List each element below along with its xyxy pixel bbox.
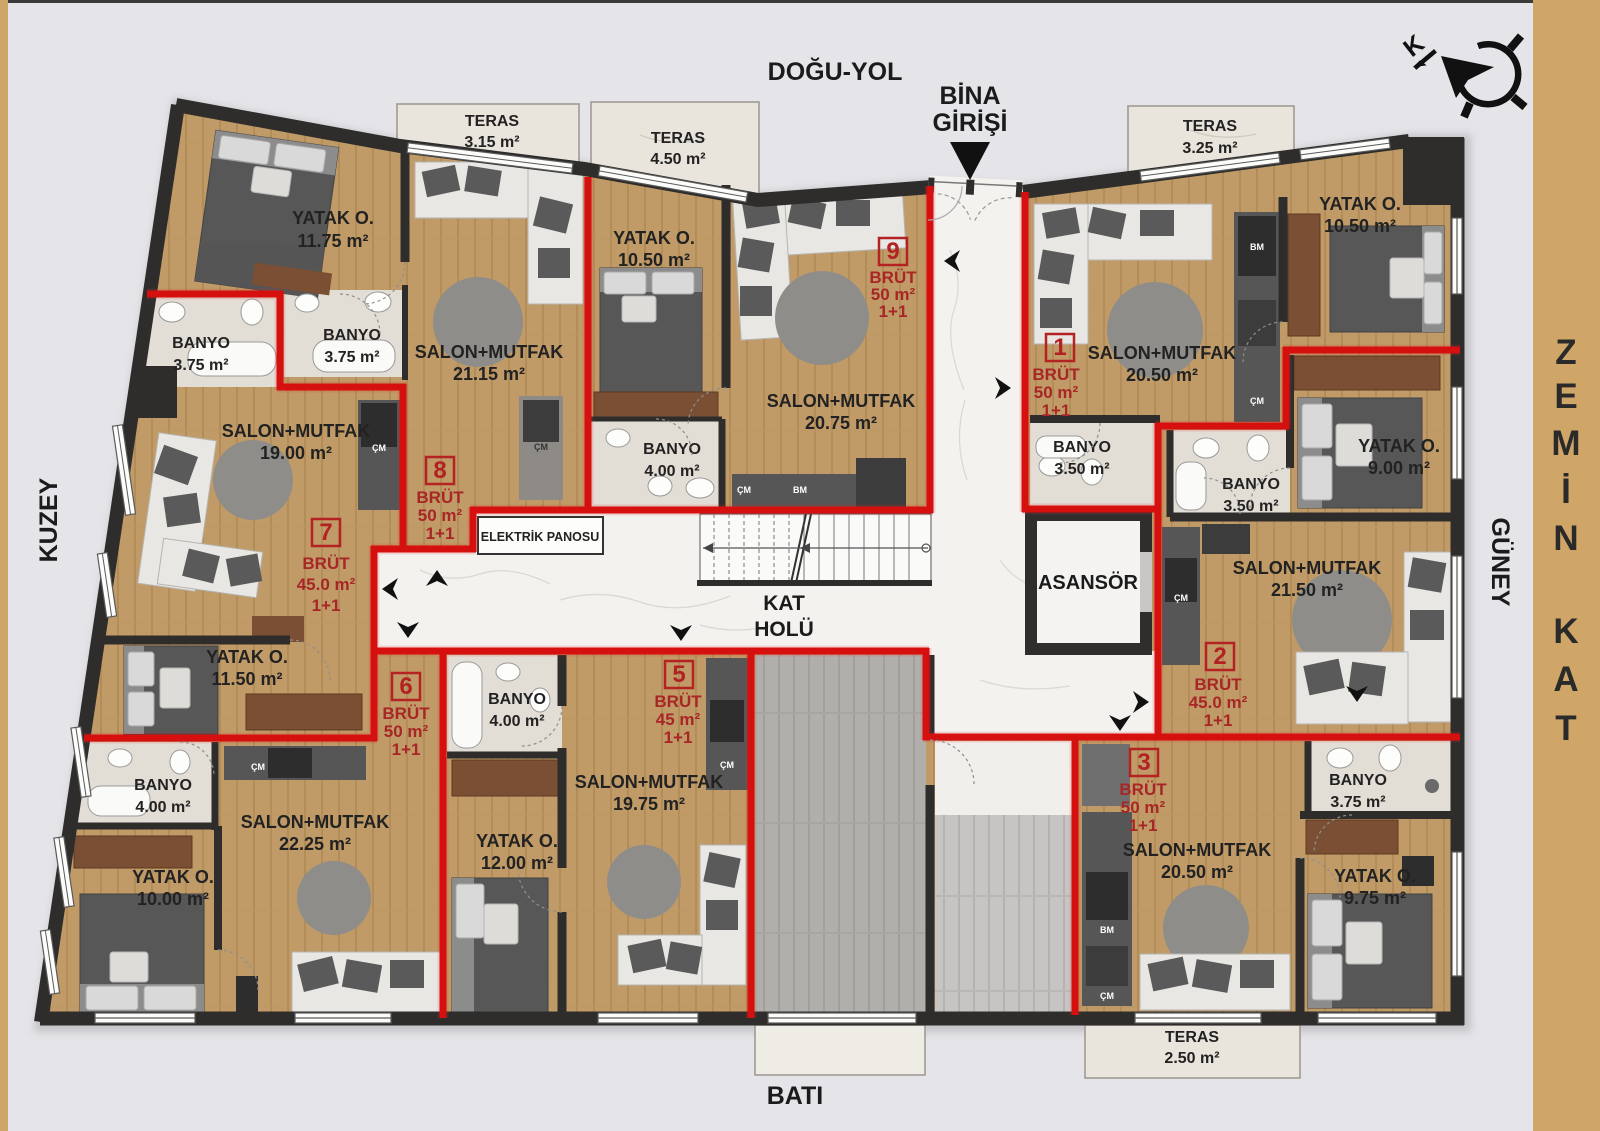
svg-text:8: 8 <box>433 457 446 484</box>
svg-text:YATAK O.: YATAK O. <box>1358 436 1440 456</box>
svg-text:2: 2 <box>1213 643 1226 670</box>
svg-text:3: 3 <box>1137 749 1150 776</box>
svg-text:SALON+MUTFAK: SALON+MUTFAK <box>575 772 724 792</box>
svg-text:YATAK O.: YATAK O. <box>476 831 558 851</box>
svg-text:BRÜT: BRÜT <box>1119 780 1167 799</box>
svg-text:4.00 m²: 4.00 m² <box>644 463 699 480</box>
svg-text:1+1: 1+1 <box>879 302 908 321</box>
svg-text:45.0 m²: 45.0 m² <box>1189 693 1248 712</box>
svg-text:20.75 m²: 20.75 m² <box>805 413 877 433</box>
svg-text:BANYO: BANYO <box>134 777 192 794</box>
svg-text:12.00 m²: 12.00 m² <box>481 853 553 873</box>
svg-text:ÇM: ÇM <box>720 760 734 770</box>
svg-text:2.50 m²: 2.50 m² <box>1164 1050 1219 1067</box>
svg-text:TERAS: TERAS <box>651 130 706 147</box>
svg-text:45.0 m²: 45.0 m² <box>297 575 356 594</box>
svg-text:6: 6 <box>399 673 412 700</box>
svg-text:7: 7 <box>319 519 332 546</box>
svg-text:YATAK O.: YATAK O. <box>132 867 214 887</box>
svg-text:BM: BM <box>793 485 807 495</box>
svg-text:Z: Z <box>1555 333 1576 372</box>
svg-text:BANYO: BANYO <box>488 691 546 708</box>
svg-text:ELEKTRİK PANOSU: ELEKTRİK PANOSU <box>481 529 600 544</box>
svg-text:ÇM: ÇM <box>534 442 548 452</box>
svg-text:9: 9 <box>886 238 899 265</box>
svg-text:3.75 m²: 3.75 m² <box>1330 794 1385 811</box>
svg-text:BANYO: BANYO <box>323 327 381 344</box>
svg-text:ÇM: ÇM <box>1100 991 1114 1001</box>
svg-text:ÇM: ÇM <box>1174 593 1188 603</box>
svg-text:1+1: 1+1 <box>1129 816 1158 835</box>
svg-text:50 m²: 50 m² <box>1034 383 1079 402</box>
svg-text:ÇM: ÇM <box>737 485 751 495</box>
svg-text:3.25 m²: 3.25 m² <box>1182 140 1237 157</box>
svg-text:9.75 m²: 9.75 m² <box>1344 888 1406 908</box>
svg-text:1+1: 1+1 <box>1204 711 1233 730</box>
svg-text:20.50 m²: 20.50 m² <box>1161 862 1233 882</box>
svg-text:9.00 m²: 9.00 m² <box>1368 458 1430 478</box>
svg-text:M: M <box>1551 424 1580 463</box>
svg-text:ÇM: ÇM <box>251 762 265 772</box>
svg-text:50 m²: 50 m² <box>384 722 429 741</box>
svg-text:SALON+MUTFAK: SALON+MUTFAK <box>1123 840 1272 860</box>
svg-text:1+1: 1+1 <box>426 524 455 543</box>
svg-text:3.15 m²: 3.15 m² <box>464 134 519 151</box>
svg-text:YATAK O.: YATAK O. <box>1334 866 1416 886</box>
svg-text:21.15 m²: 21.15 m² <box>453 364 525 384</box>
svg-text:1: 1 <box>1053 334 1066 361</box>
svg-text:SALON+MUTFAK: SALON+MUTFAK <box>1088 343 1237 363</box>
svg-text:10.50 m²: 10.50 m² <box>618 250 690 270</box>
svg-text:GİRİŞİ: GİRİŞİ <box>932 109 1007 137</box>
svg-text:4.50 m²: 4.50 m² <box>650 151 705 168</box>
svg-text:BRÜT: BRÜT <box>302 554 350 573</box>
svg-text:22.25 m²: 22.25 m² <box>279 834 351 854</box>
svg-text:BANYO: BANYO <box>1053 439 1111 456</box>
svg-text:BM: BM <box>1250 242 1264 252</box>
svg-text:A: A <box>1553 660 1578 699</box>
svg-text:SALON+MUTFAK: SALON+MUTFAK <box>415 342 564 362</box>
svg-text:3.75 m²: 3.75 m² <box>173 357 228 374</box>
svg-text:10.50 m²: 10.50 m² <box>1324 216 1396 236</box>
svg-text:N: N <box>1553 519 1578 558</box>
svg-text:10.00 m²: 10.00 m² <box>137 889 209 909</box>
svg-text:BRÜT: BRÜT <box>382 704 430 723</box>
svg-text:1+1: 1+1 <box>664 728 693 747</box>
svg-text:50 m²: 50 m² <box>1121 798 1166 817</box>
svg-text:11.50 m²: 11.50 m² <box>211 669 282 689</box>
svg-text:ÇM: ÇM <box>1250 396 1264 406</box>
svg-text:BATI: BATI <box>767 1082 823 1110</box>
svg-text:4.00 m²: 4.00 m² <box>135 799 190 816</box>
svg-text:4.00 m²: 4.00 m² <box>489 713 544 730</box>
svg-text:45 m²: 45 m² <box>656 710 701 729</box>
svg-text:K: K <box>1553 612 1578 651</box>
svg-text:T: T <box>1555 709 1576 748</box>
svg-text:19.75 m²: 19.75 m² <box>613 794 685 814</box>
svg-text:11.75 m²: 11.75 m² <box>297 231 368 251</box>
svg-text:BANYO: BANYO <box>643 441 701 458</box>
svg-text:TERAS: TERAS <box>1165 1029 1220 1046</box>
svg-text:DOĞU-YOL: DOĞU-YOL <box>768 57 903 86</box>
svg-text:21.50 m²: 21.50 m² <box>1271 580 1343 600</box>
svg-text:3.50 m²: 3.50 m² <box>1054 461 1109 478</box>
svg-text:YATAK O.: YATAK O. <box>292 208 374 228</box>
svg-text:1+1: 1+1 <box>392 740 421 759</box>
svg-text:BİNA: BİNA <box>939 82 1000 110</box>
svg-text:50 m²: 50 m² <box>418 506 463 525</box>
svg-text:BM: BM <box>1100 925 1114 935</box>
svg-text:19.00 m²: 19.00 m² <box>260 443 332 463</box>
svg-text:TERAS: TERAS <box>1183 118 1238 135</box>
svg-text:BRÜT: BRÜT <box>1032 365 1080 384</box>
svg-text:HOLÜ: HOLÜ <box>754 618 814 641</box>
svg-text:BRÜT: BRÜT <box>1194 675 1242 694</box>
svg-text:İ: İ <box>1561 472 1571 511</box>
svg-text:YATAK O.: YATAK O. <box>613 228 695 248</box>
svg-text:BRÜT: BRÜT <box>654 692 702 711</box>
svg-text:BRÜT: BRÜT <box>416 488 464 507</box>
svg-text:YATAK O.: YATAK O. <box>206 647 288 667</box>
svg-text:1+1: 1+1 <box>1042 401 1071 420</box>
svg-text:SALON+MUTFAK: SALON+MUTFAK <box>222 421 371 441</box>
svg-text:KAT: KAT <box>763 592 805 615</box>
svg-text:GÜNEY: GÜNEY <box>1486 518 1515 607</box>
svg-text:SALON+MUTFAK: SALON+MUTFAK <box>1233 558 1382 578</box>
svg-text:SALON+MUTFAK: SALON+MUTFAK <box>767 391 916 411</box>
svg-text:E: E <box>1554 377 1577 416</box>
svg-text:BANYO: BANYO <box>172 335 230 352</box>
svg-text:KUZEY: KUZEY <box>35 477 63 562</box>
svg-text:3.75 m²: 3.75 m² <box>324 349 379 366</box>
svg-text:YATAK O.: YATAK O. <box>1319 194 1401 214</box>
svg-text:20.50 m²: 20.50 m² <box>1126 365 1198 385</box>
svg-text:1+1: 1+1 <box>312 596 341 615</box>
svg-text:ASANSÖR: ASANSÖR <box>1038 571 1139 594</box>
svg-text:ÇM: ÇM <box>372 443 386 453</box>
svg-text:TERAS: TERAS <box>465 113 520 130</box>
svg-text:BANYO: BANYO <box>1329 772 1387 789</box>
svg-text:SALON+MUTFAK: SALON+MUTFAK <box>241 812 390 832</box>
svg-text:5: 5 <box>672 661 685 688</box>
